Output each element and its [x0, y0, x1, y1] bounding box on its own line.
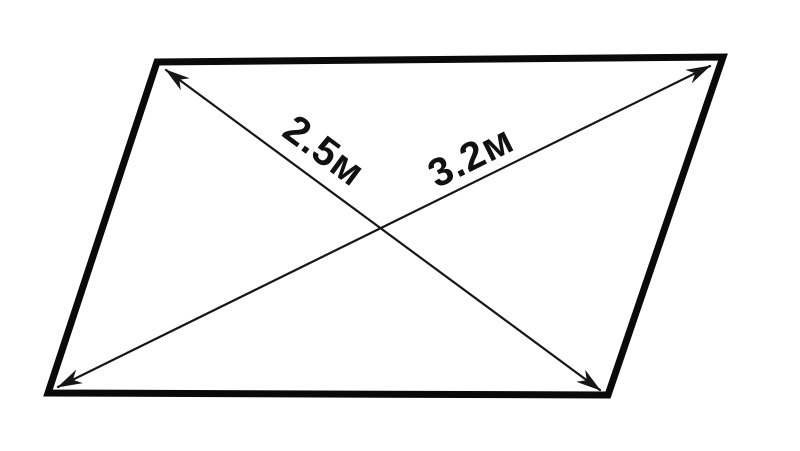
- diagonal-label-short: 2.5м: [275, 107, 373, 195]
- diagram-canvas: 2.5м 3.2м: [0, 0, 800, 451]
- parallelogram-diagram: 2.5м 3.2м: [0, 0, 800, 451]
- diagonal-line-topleft-bottomright: [166, 70, 600, 390]
- diagonal-line-bottomleft-topright: [58, 66, 710, 387]
